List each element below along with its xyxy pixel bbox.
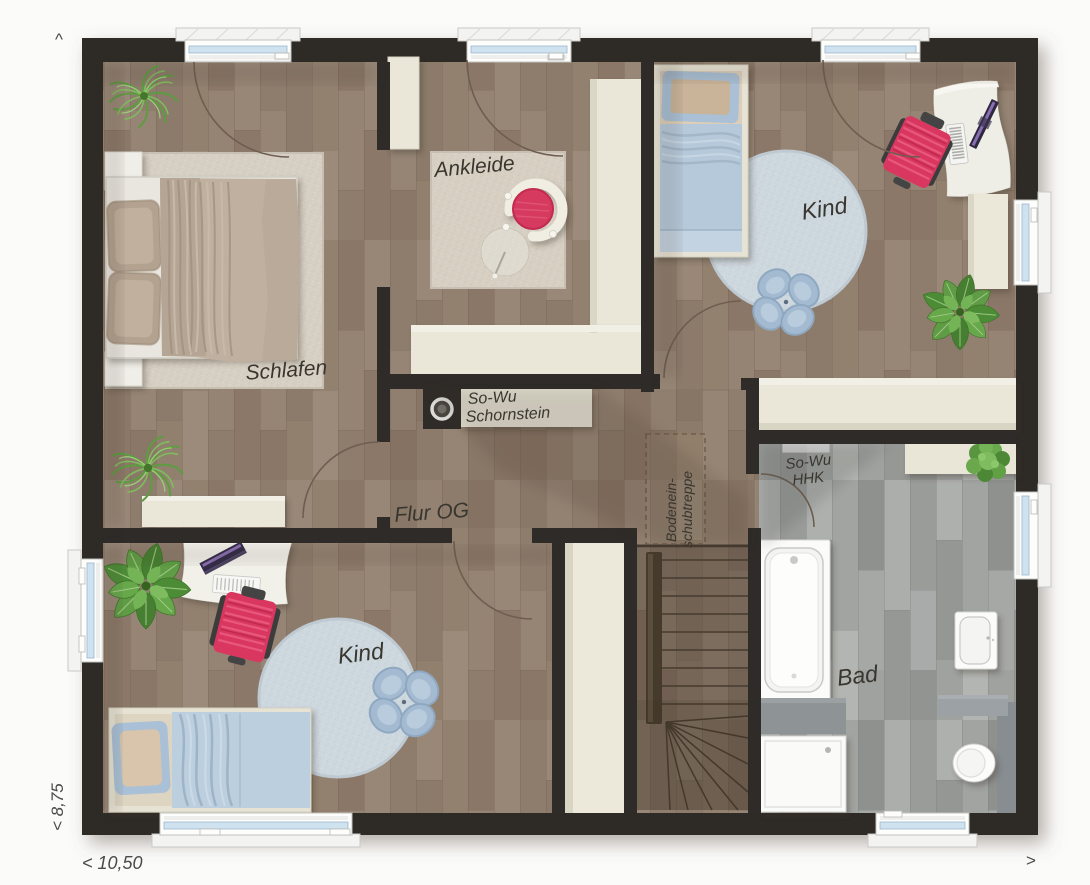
svg-text:Bad: Bad <box>835 660 880 691</box>
svg-text:HHK: HHK <box>792 469 826 489</box>
svg-text:^: ^ <box>55 30 63 49</box>
svg-text:>: > <box>1026 851 1036 870</box>
svg-text:schubtreppe: schubtreppe <box>679 471 695 548</box>
svg-text:< 8,75: < 8,75 <box>48 783 67 831</box>
svg-text:< 10,50: < 10,50 <box>82 853 143 873</box>
svg-text:Bodenein-: Bodenein- <box>663 478 679 542</box>
svg-text:So-Wu: So-Wu <box>467 388 517 408</box>
